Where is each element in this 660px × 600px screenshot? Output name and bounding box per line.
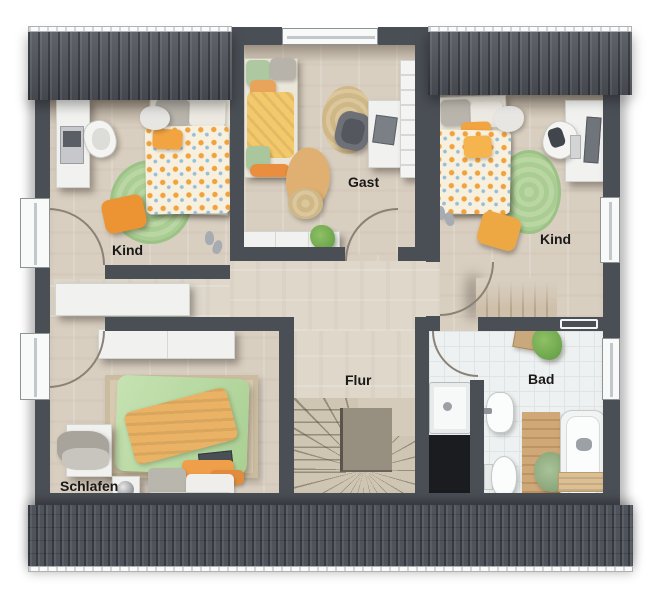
window-gast: [282, 28, 378, 45]
roof-top-left: [28, 31, 232, 100]
floor-plan: Kind Gast Kind Flur Bad Schlafen: [0, 0, 660, 600]
wall-schlafen-north-a: [35, 317, 48, 331]
hall-sideboard: [55, 283, 190, 316]
bath-partition-wall: [470, 380, 484, 493]
printer-lid: [63, 131, 81, 147]
gutter-top-right: [428, 26, 632, 32]
window-kind-right: [600, 197, 620, 263]
wall-dormer-north-left: [230, 27, 282, 45]
stair-core: [340, 408, 392, 472]
winder-staircase: [294, 398, 415, 507]
window-pane: [610, 343, 613, 397]
wall-gast-south-a: [230, 247, 345, 261]
wall-exterior-right: [603, 90, 620, 507]
window-pane: [287, 36, 375, 39]
pillow-white: [189, 98, 226, 127]
keyboard: [570, 135, 581, 159]
pillow-sky: [463, 135, 492, 158]
monitor: [583, 117, 601, 164]
plant: [532, 327, 562, 360]
window-pane: [609, 202, 612, 260]
roof-top-right: [428, 31, 632, 95]
toilet: [491, 456, 517, 498]
window-bad: [602, 338, 620, 400]
bolster-orange: [250, 164, 290, 177]
bathtub-faucet: [576, 438, 592, 451]
wall-bad-north-a: [415, 317, 432, 331]
room-label-gast: Gast: [348, 174, 379, 190]
wall-exterior-left: [35, 90, 50, 507]
clothes-pile-light: [62, 448, 109, 470]
wall-stairs-east: [415, 331, 429, 507]
pouf: [288, 188, 323, 219]
pillow-gray: [148, 468, 186, 495]
window-pane: [34, 338, 37, 397]
shaft-void: [429, 435, 472, 493]
wall-bad-north-b: [478, 317, 620, 331]
wall-dormer-west: [230, 27, 244, 260]
chair-seat: [92, 128, 110, 150]
wall-gast-south-b: [398, 247, 429, 261]
room-label-flur: Flur: [345, 372, 371, 388]
shower-drain: [443, 402, 452, 411]
sideboard-seam: [167, 330, 168, 358]
gutter-bottom: [28, 566, 633, 572]
room-label-bad: Bad: [528, 371, 554, 387]
towel-radiator: [560, 319, 598, 329]
roof-bottom: [28, 505, 633, 567]
wall-kindright-west: [426, 90, 440, 262]
bedroom-sideboard: [98, 329, 235, 359]
wall-schlafen-north-b: [105, 317, 293, 331]
wall-dormer-north-right: [378, 27, 429, 45]
cloud-stool: [140, 106, 170, 130]
laptop: [372, 115, 398, 146]
room-label-schlafen: Schlafen: [60, 478, 118, 494]
gutter-top-left: [28, 26, 232, 32]
wall-kindleft-south-b: [105, 265, 230, 279]
stair-treads: [294, 398, 346, 474]
pillow-orange: [152, 129, 183, 150]
bath-caddy: [558, 472, 608, 492]
window-schlafen: [20, 333, 50, 400]
window-pane: [34, 203, 37, 265]
room-label-kind-left: Kind: [112, 242, 143, 258]
slipper-left: [205, 231, 214, 245]
pillow-gray: [270, 58, 296, 80]
window-kind-left: [20, 198, 50, 268]
room-label-kind-right: Kind: [540, 231, 571, 247]
wall-schlafen-east: [279, 317, 294, 507]
washbasin-faucet: [483, 408, 492, 414]
